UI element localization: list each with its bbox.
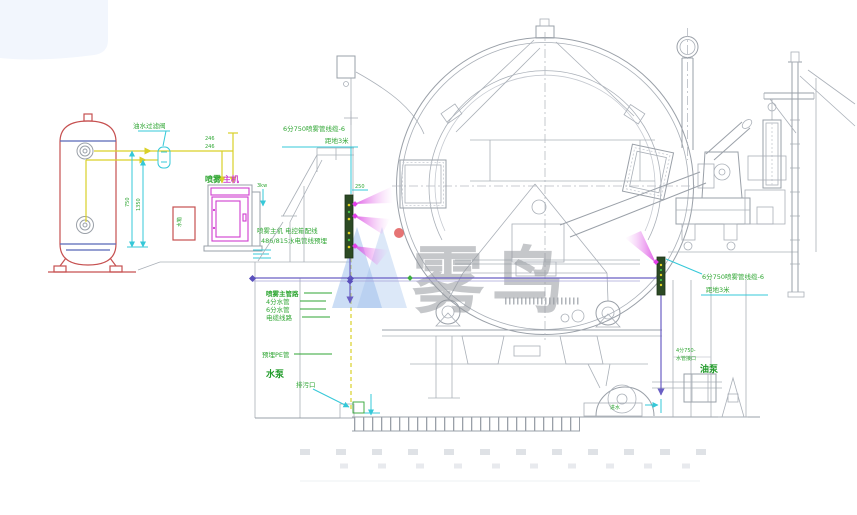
left-riser-label-2: 距地3米 (325, 136, 349, 145)
corner-background-blob (0, 0, 108, 59)
drum-left-hatch (400, 160, 446, 208)
left-riser-label-1: 6分750喷雾管线缆-6 (283, 124, 345, 133)
note-line-1: 喷雾主机 电控箱配线 (257, 226, 318, 235)
right-pipe-label-2: 水管接口 (676, 355, 696, 362)
right-pipe-label-1: 4分750- (676, 347, 696, 354)
right-riser-label-2: 距地3米 (706, 285, 730, 294)
storage-tank (48, 114, 352, 272)
tank-nozzle-top (77, 143, 93, 159)
pit-label: 预埋PE管 (262, 350, 290, 359)
spray-manifold-right (625, 231, 665, 295)
control-cabinet: 喷雾 主机 3kw (204, 174, 267, 251)
cad-canvas: 750 1350 246 246 油水过滤阀 水箱 喷雾 主机 3kw 喷雾主机… (0, 0, 857, 515)
list-item-1: 喷雾主管路 (266, 289, 299, 298)
filter-label: 油水过滤阀 (133, 121, 166, 130)
water-box: 水箱 (173, 207, 195, 240)
filter-annotation: 油水过滤阀 (133, 121, 170, 146)
riser-dim-bottom: 246 (205, 144, 215, 150)
hoist-mast (745, 52, 855, 297)
pump-unit: 进水 (584, 364, 748, 417)
drain-label: 排污口 (296, 380, 316, 389)
tank-nozzle-bottom (77, 217, 94, 234)
dim-height-750: 750 (125, 197, 131, 207)
spray-manifold-left: 250 (345, 184, 393, 265)
list-item-2: 4分水管 (266, 297, 290, 306)
cable-mast (337, 56, 424, 195)
manifold-dim-label: 250 (355, 184, 365, 190)
watermark: 雾鸟 (332, 227, 572, 323)
p pump-label: 水泵 (266, 368, 285, 380)
pipe-routing (249, 258, 661, 395)
chimney (677, 28, 698, 160)
riser-dim-top: 246 (205, 136, 215, 142)
cabinet-power-label: 3kw (257, 183, 267, 189)
water-box-label: 水箱 (176, 217, 183, 227)
oil-pump-label: 油泵 (700, 363, 719, 375)
list-item-3: 6分水管 (266, 305, 290, 314)
materials-list: 喷雾主管路 4分水管 6分水管 电缆线路 (266, 289, 332, 322)
inline-filter (158, 147, 170, 168)
dim-height-1350: 1350 (136, 198, 142, 211)
cabinet-label-magenta: 主机 (223, 174, 239, 184)
list-item-4: 电缆线路 (266, 313, 293, 322)
right-riser-label-1: 6分750喷雾管线缆-6 (702, 272, 764, 281)
pump-inlet-label: 进水 (610, 404, 620, 411)
cabinet-label-green: 喷雾 (205, 174, 222, 184)
wuniao-logo-dot (394, 228, 404, 238)
cad-drawing-viewport: 750 1350 246 246 油水过滤阀 水箱 喷雾 主机 3kw 喷雾主机… (0, 0, 857, 515)
